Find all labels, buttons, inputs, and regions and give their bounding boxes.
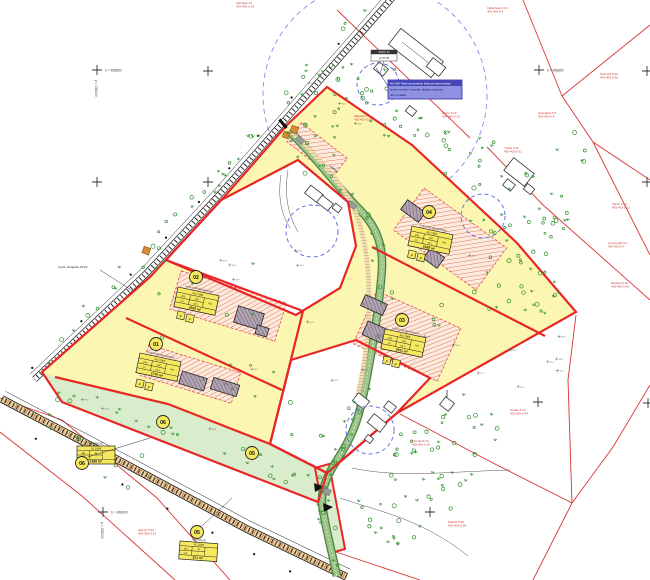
parcel-id: 405-405-5-12	[612, 205, 630, 209]
utility-pole-icon	[198, 201, 200, 203]
plot-number-circle: 03	[396, 314, 409, 327]
grid-coordinate: h = 458600	[111, 511, 128, 515]
parcel-id: 405-405-5-28	[448, 523, 466, 527]
plot-number: 05	[194, 530, 200, 536]
parcel-id: 405-405-3-18	[236, 4, 254, 8]
well-info-box: KAIVO 12 vp 57.35	[371, 50, 397, 61]
utility-pole-icon	[211, 532, 213, 534]
table-title: VIHERALUE	[89, 442, 103, 445]
grid-coordinate: p = 158200	[100, 522, 104, 539]
parcel-label: Niemelä 5:36405-405-5-36	[600, 72, 618, 79]
parcel-id: 405-405-5-22	[442, 114, 460, 118]
utility-pole-icon	[80, 320, 82, 322]
grid-coordinate: p = 158200	[94, 80, 98, 97]
utility-pole-icon	[31, 367, 33, 369]
table-cell: nur	[184, 552, 188, 555]
site-plan-map: 55.556.759.355.358.859.059.956.156.860.3…	[0, 0, 650, 580]
parcel-id: 405-405-5-40	[611, 284, 629, 288]
utility-pole-icon	[165, 237, 167, 239]
plot-number-circle: 05	[246, 447, 259, 460]
parcel-id: 405-405-5-36	[600, 75, 618, 79]
plot-number: 06	[160, 420, 166, 426]
plot-number: 05	[249, 451, 255, 457]
utility-pole-icon	[130, 274, 132, 276]
plot-number: 03	[399, 318, 405, 324]
plot-number-circle: 02	[190, 271, 203, 284]
parcel-label: Metsola 5:40405-405-5-40	[611, 281, 629, 288]
utility-pole-icon	[253, 553, 255, 555]
plot-number: 01	[153, 342, 159, 348]
parcel-id: 405-405-5-15	[354, 117, 372, 121]
plot-number: 04	[426, 210, 432, 216]
parcel-label: Koivula 5:19405-405-5-19	[412, 439, 430, 446]
grid-coordinate: h = 458850	[547, 69, 564, 73]
parcel-id: 405-405-5-4	[487, 9, 504, 13]
parcel-id: 405-405-5-31	[504, 149, 522, 153]
utility-pole-icon	[291, 96, 293, 98]
plot-number: 06	[79, 461, 85, 467]
plot-number-circle: 05	[191, 526, 204, 539]
utility-pole-icon	[228, 167, 230, 169]
table-area: 1420 m²	[90, 460, 103, 464]
parcel-id: 405-405-5-33	[138, 531, 156, 535]
plot-number: 02	[193, 275, 199, 281]
utility-pole-icon	[121, 483, 123, 485]
well-box-value: vp 57.35	[379, 56, 390, 60]
well-box-title: KAIVO 12	[378, 50, 390, 54]
utility-pole-icon	[35, 438, 37, 440]
plot-number-circle: 06	[157, 416, 170, 429]
plot-number-circle: 04	[423, 206, 436, 219]
parcel-label: Alanen 5:33405-405-5-33	[138, 528, 156, 535]
note-line-3: tien mukaan	[390, 93, 407, 97]
grid-coordinate: h = 458850	[105, 69, 122, 73]
note-box: HUOM! Rakennuspaikan liittymä rakennetaa…	[388, 80, 462, 99]
site-plan-page: 55.556.759.355.358.859.059.956.156.860.3…	[0, 0, 650, 580]
parcel-id: 405-405-5-44	[510, 411, 528, 415]
utility-pole-icon	[338, 43, 340, 45]
plot-number-circle: 06	[76, 457, 89, 470]
table-cell: oja	[82, 452, 86, 455]
plot-number-circle: 01	[150, 338, 163, 351]
table-code: VL 1006	[91, 446, 102, 450]
parcel-label: Peltola 5:28405-405-5-28	[448, 520, 466, 527]
table-code: VL 1005	[194, 542, 205, 547]
utility-pole-icon	[289, 570, 291, 572]
utility-pole-icon	[166, 508, 168, 510]
parcel-id: 405-405-5-9	[538, 114, 555, 118]
powerline-label: 3-joht. ilmajohto 20 kV	[58, 265, 88, 269]
note-line-1: HUOM! Rakennuspaikan liittymä rakennetaa…	[390, 81, 451, 85]
parcel-label: Mäkelä 5:15405-405-5-15	[354, 114, 372, 121]
parcel-label: Kotipalsta 5:9405-405-5-9	[538, 111, 557, 118]
parcel-label: Vanhatie 13405-405-3-18	[236, 1, 254, 8]
parcel-id: 405-405-5-7	[608, 244, 625, 248]
note-line-2: ennen tonttien myyntiä, tasaus nykyisen	[390, 88, 444, 92]
table-area: 671 m²	[193, 556, 205, 561]
parcel-id: 405-405-5-19	[412, 442, 430, 446]
